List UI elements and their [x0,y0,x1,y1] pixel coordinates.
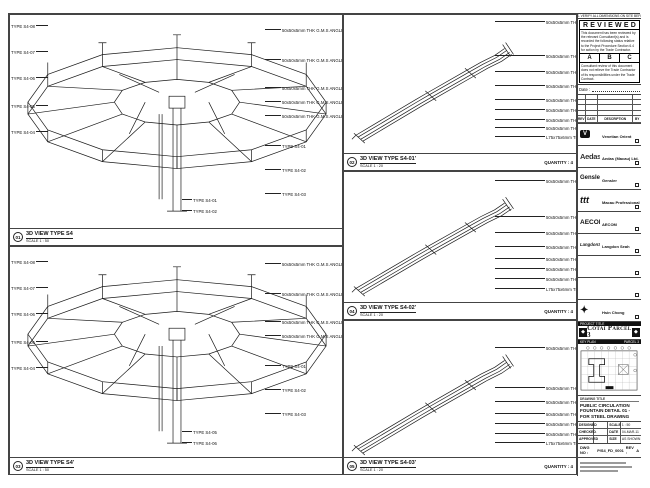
view-title: 3D VIEW TYPE S4 [26,231,73,239]
annotation-label: TYPE S4-07 [11,51,48,55]
view-title-bar: 02 3D VIEW TYPE S4-01' SCALE 1 : 20 QUAN… [344,153,576,170]
party-row: AECOM AECOM [578,212,641,234]
annotation-label: L75x75x6mm THK G.M.S ANGLES [495,136,576,140]
panel-detail-s4-03: 50x50x5mm THK G.M.S ANGLES50x50x5mm THK … [343,320,577,475]
party-logo [580,279,600,298]
party-checkbox [635,183,639,187]
drawing-title-block: DRAWING TITLE PUBLIC CIRCULATION FOUNTAI… [578,396,641,422]
annotation-label: L75x75x6mm THK G.M.S ANGLES [495,442,576,446]
annotation-label: TYPE S4-06 [11,313,48,317]
view-title-bar: 04 3D VIEW TYPE S4-02' SCALE 1 : 20 QUAN… [344,302,576,319]
party-logo [580,257,600,276]
dwg-no-value: P/S4_FD_0001 [597,448,624,453]
rev-value: A [636,448,639,453]
party-name: AECOM [602,222,617,227]
drawing-canvas: TYPE S4-08TYPE S4-07TYPE S4-06TYPE S4-05… [10,15,342,228]
annotation-label: TYPE S4-04 [11,367,48,371]
annotation-label: 50x50x5mm THK G.M.S ANGLES [265,293,342,297]
party-logo: V [580,125,600,144]
annotation-label: 50x50x5mm THK G.M.S ANGLES [495,109,576,113]
key-plan-map [579,345,640,394]
annotation-labels-right: 50x50x5mm THK G.M.S ANGLES50x50x5mm THK … [495,321,575,457]
annotation-labels-right: 50x50x5mm THK G.M.S ANGLES50x50x5mm THK … [265,15,341,228]
annotation-label: 50x50x5mm THK G.M.S ANGLES [495,71,576,75]
annotation-labels-right: 50x50x5mm THK G.M.S ANGLES50x50x5mm THK … [495,15,575,153]
size-value: AS SHOWN [621,436,641,443]
annotation-label: TYPE S4-06 [182,442,217,446]
date-field-label: DATE [608,429,621,435]
description-col-header: DESCRIPTION [598,116,633,122]
annotation-label: 50x50x5mm THK G.M.S ANGLES [495,278,576,282]
party-row: ✦ Hsin Chong Construction (Macau) Co., L… [578,300,641,322]
party-logo: ✦ [580,301,600,320]
party-checkbox [635,205,639,209]
panel-3d-view-s4-prime: TYPE S4-08TYPE S4-07TYPE S4-06TYPE S4-05… [9,246,343,475]
reviewed-stamp-disclaimer: Consultant review of this document does … [580,63,639,82]
annotation-labels-left: TYPE S4-08TYPE S4-07TYPE S4-06TYPE S4-05… [11,15,63,228]
status-cell-b: B [600,54,620,62]
party-row: ttt Macau Professional Services Ltd. [578,190,641,212]
party-row [578,256,641,278]
panel-detail-s4-01: 50x50x5mm THK G.M.S ANGLES50x50x5mm THK … [343,14,577,171]
reviewed-stamp-text: This document has been reviewed by the r… [580,30,639,54]
annotation-labels-bottom: TYPE S4-05TYPE S4-06 [182,431,242,457]
party-row: Gensler Gensler [578,168,641,190]
revision-table-header: REV DATE DESCRIPTION BY [578,116,641,123]
quantity-label: QUANTITY : 4 [544,464,573,469]
date-field-value: 04-MAR-11 [621,429,641,435]
date-col-header: DATE [586,116,599,122]
drawing-canvas: 50x50x5mm THK G.M.S ANGLES50x50x5mm THK … [344,321,576,457]
by-col-header: BY [633,116,641,122]
annotation-label: 50x50x5mm THK G.M.S ANGLES [495,21,576,25]
project-name: Cotai Parcel 3 [587,325,632,339]
annotation-label: 50x50x5mm THK G.M.S ANGLES [495,119,576,123]
rev-col-header: REV [578,116,586,122]
annotation-label: 50x50x5mm THK G.M.S ANGLES [495,99,576,103]
drawing-canvas: 50x50x5mm THK G.M.S ANGLES50x50x5mm THK … [344,172,576,302]
party-name: Hsin Chong Construction (Macau) Co., Ltd… [602,310,634,320]
view-scale: SCALE 1 : 50 [26,239,73,243]
drawing-canvas: TYPE S4-08TYPE S4-07TYPE S4-06TYPE S4-05… [10,247,342,457]
annotation-label: TYPE S4-06 [11,77,48,81]
drawing-title-line3: FOR STEEL DRAWING [580,414,639,420]
annotation-label: 50x50x5mm THK G.M.S ANGLES [495,413,576,417]
annotation-label: 50x50x5mm THK G.M.S ANGLES [495,423,576,427]
quantity-label: QUANTITY : 4 [544,309,573,314]
designed-value: - [594,422,608,428]
party-checkbox [635,161,639,165]
reviewed-stamp: REVIEWED This document has been reviewed… [578,19,641,86]
drawing-canvas: 50x50x5mm THK G.M.S ANGLES50x50x5mm THK … [344,15,576,153]
view-title-bar: 03 3D VIEW TYPE S4' SCALE 1 : 50 [10,457,342,474]
rev-label: REV : [626,445,634,455]
annotation-label: 50x50x5mm THK G.M.S ANGLES [265,115,342,119]
party-checkbox [635,227,639,231]
annotation-label: TYPE S4-08 [11,25,48,29]
parties-list: V Venetian Orient Limited Aedas Aedas (M… [578,124,641,322]
key-plan [578,344,641,396]
sheet-frame: TYPE S4-08TYPE S4-07TYPE S4-06TYPE S4-05… [8,13,640,475]
detail-number-bubble: 01 [13,232,23,242]
reviewed-stamp-title: REVIEWED [580,21,639,30]
date-fill-line [592,88,640,92]
party-logo: Aedas [580,147,600,166]
annotation-label: 50x50x5mm THK G.M.S ANGLES [495,85,576,89]
annotation-label: TYPE S4-02 [265,169,306,173]
annotation-label: TYPE S4-04 [11,131,48,135]
ornament-diamond-icon: ◆ [632,328,640,337]
scale-value: 1 : 50 [621,422,641,428]
annotation-label: TYPE S4-01 [265,365,306,369]
party-checkbox [635,249,639,253]
annotation-label: TYPE S4-05 [182,431,217,435]
status-cell-c: C [620,54,639,62]
size-label: SIZE [608,436,621,443]
ornament-diamond-icon: ◆ [579,328,587,337]
party-logo: ttt [580,191,600,210]
party-logo: Gensler [580,169,600,188]
annotation-label: L75x75x6mm THK G.M.S ANGLES [495,288,576,292]
view-scale: SCALE 1 : 50 [26,468,74,472]
annotation-label: TYPE S4-01 [182,199,217,203]
annotation-label: 50x50x5mm THK G.M.S ANGLES [265,59,342,63]
annotation-label: 50x50x5mm THK G.M.S ANGLES [265,29,342,33]
scale-label: SCALE [608,422,621,428]
approved-value: - [594,436,608,443]
party-row: LangdonSeah Langdon Seah [578,234,641,256]
annotation-label: TYPE S4-01 [265,145,306,149]
annotation-label: 50x50x5mm THK G.M.S ANGLES [265,87,342,91]
party-name: Venetian Orient Limited [602,134,631,144]
party-logo: AECOM [580,213,600,232]
party-name: Langdon Seah [602,244,630,249]
detail-number-bubble: 04 [347,306,357,316]
fine-print-rows [578,458,641,476]
annotation-label: TYPE S4-03 [265,413,306,417]
party-logo: LangdonSeah [580,235,600,254]
annotation-label: TYPE S4-05 [11,105,48,109]
detail-number-bubble: 02 [347,157,357,167]
annotation-labels-left: TYPE S4-08TYPE S4-07TYPE S4-06TYPE S4-05… [11,247,63,457]
annotation-label: 50x50x5mm THK G.M.S ANGLES [495,127,576,131]
drawing-number-row: DWG NO : P/S4_FD_0001 REV : A [578,444,641,458]
annotation-labels-right: 50x50x5mm THK G.M.S ANGLES50x50x5mm THK … [265,247,341,457]
annotation-label: 50x50x5mm THK G.M.S ANGLES [495,232,576,236]
annotation-label: 50x50x5mm THK G.M.S ANGLES [495,433,576,437]
detail-number-bubble: 05 [347,461,357,471]
status-cell-a: A [580,54,600,62]
party-row: V Venetian Orient Limited [578,124,641,146]
view-title: 3D VIEW TYPE S4-03' [360,460,416,468]
view-title: 3D VIEW TYPE S4-01' [360,156,416,164]
annotation-label: 50x50x5mm THK G.M.S ANGLES [495,268,576,272]
annotation-label: TYPE S4-08 [11,261,48,265]
annotation-label: TYPE S4-05 [11,341,48,345]
annotation-label: TYPE S4-03 [265,193,306,197]
designed-label: DESIGNED [578,422,594,428]
status-row: A B C [580,54,639,63]
panel-detail-s4-02: 50x50x5mm THK G.M.S ANGLES50x50x5mm THK … [343,171,577,320]
party-row [578,278,641,300]
annotation-labels-right: 50x50x5mm THK G.M.S ANGLES50x50x5mm THK … [495,172,575,302]
annotation-label: 50x50x5mm THK G.M.S ANGLES [265,101,342,105]
party-name: Gensler [602,178,617,183]
view-title-bar: 05 3D VIEW TYPE S4-03' SCALE 1 : 20 QUAN… [344,457,576,474]
date-label: Date : [579,87,590,92]
checked-label: CHECKED [578,429,594,435]
drawing-title-label: DRAWING TITLE [580,397,639,402]
approved-label: APPROVED [578,436,594,443]
approval-fields: DESIGNED - SCALE 1 : 50 CHECKED - DATE 0… [578,422,641,444]
annotation-label: TYPE S4-02 [265,389,306,393]
annotation-label: 50x50x5mm THK G.M.S ANGLES [495,246,576,250]
party-name: Macau Professional Services Ltd. [602,200,640,210]
party-name: Aedas (Macau) Ltd. [602,156,639,161]
annotation-labels-bottom: TYPE S4-01TYPE S4-02 [182,199,242,228]
project-name-row: ◆ Cotai Parcel 3 ◆ [578,326,641,340]
annotation-label: 50x50x5mm THK G.M.S ANGLES [265,263,342,267]
panel-3d-view-s4: TYPE S4-08TYPE S4-07TYPE S4-06TYPE S4-05… [9,14,343,246]
annotation-label: 50x50x5mm THK G.M.S ANGLES [265,335,342,339]
revision-table: REV DATE DESCRIPTION BY [578,95,641,123]
party-checkbox [635,315,639,319]
annotation-label: 50x50x5mm THK G.M.S ANGLES [495,55,576,59]
title-block-strip: DO NOT SCALE DRAWINGS. VERIFY ALL DIMENS… [577,14,641,476]
party-checkbox [635,293,639,297]
date-row: Date : [578,85,641,95]
annotation-label: TYPE S4-02 [182,210,217,214]
dwg-no-label: DWG NO : [580,445,595,455]
party-checkbox [635,271,639,275]
annotation-label: 50x50x5mm THK G.M.S ANGLES [495,216,576,220]
view-scale: SCALE 1 : 20 [360,164,416,168]
view-title: 3D VIEW TYPE S4' [26,460,74,468]
detail-number-bubble: 03 [13,461,23,471]
annotation-label: TYPE S4-07 [11,287,48,291]
drawing-sheet-page: TYPE S4-08TYPE S4-07TYPE S4-06TYPE S4-05… [0,0,650,488]
quantity-label: QUANTITY : 4 [544,160,573,165]
party-row: Aedas Aedas (Macau) Ltd. [578,146,641,168]
view-scale: SCALE 1 : 20 [360,468,416,472]
annotation-label: 50x50x5mm THK G.M.S ANGLES [265,321,342,325]
annotation-label: 50x50x5mm THK G.M.S ANGLES [495,180,576,184]
view-title: 3D VIEW TYPE S4-02' [360,305,416,313]
party-checkbox [635,139,639,143]
annotation-label: 50x50x5mm THK G.M.S ANGLES [495,401,576,405]
annotation-label: 50x50x5mm THK G.M.S ANGLES [495,258,576,262]
annotation-label: 50x50x5mm THK G.M.S ANGLES [495,387,576,391]
annotation-label: 50x50x5mm THK G.M.S ANGLES [495,347,576,351]
view-scale: SCALE 1 : 20 [360,313,416,317]
checked-value: - [594,429,608,435]
view-title-bar: 01 3D VIEW TYPE S4 SCALE 1 : 50 [10,228,342,245]
